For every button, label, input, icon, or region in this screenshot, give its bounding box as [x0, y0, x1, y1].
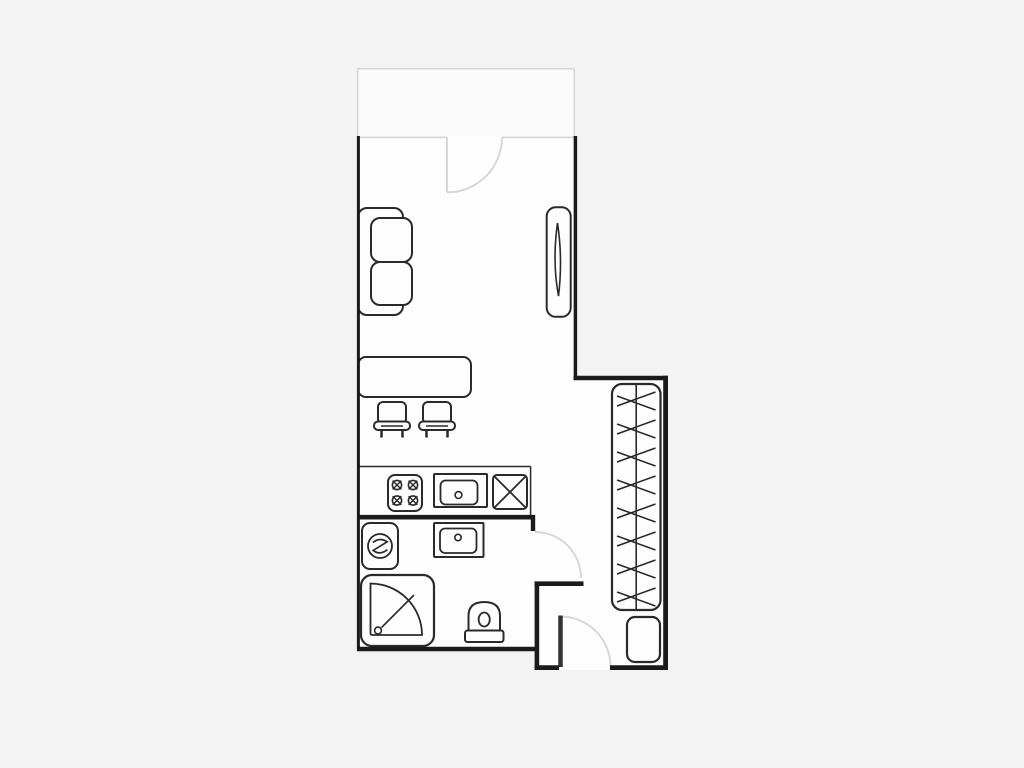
floor-plan-svg	[0, 0, 1024, 768]
sofa-cushion	[371, 218, 412, 262]
floor-plan-canvas	[0, 0, 1024, 768]
sofa-cushion	[371, 262, 412, 305]
balcony-floor	[358, 69, 575, 137]
entry-cabinet	[627, 617, 660, 662]
shower-drain	[375, 627, 382, 634]
dining-table	[358, 357, 471, 397]
toilet-cistern	[465, 631, 504, 643]
window-frame	[547, 207, 571, 316]
